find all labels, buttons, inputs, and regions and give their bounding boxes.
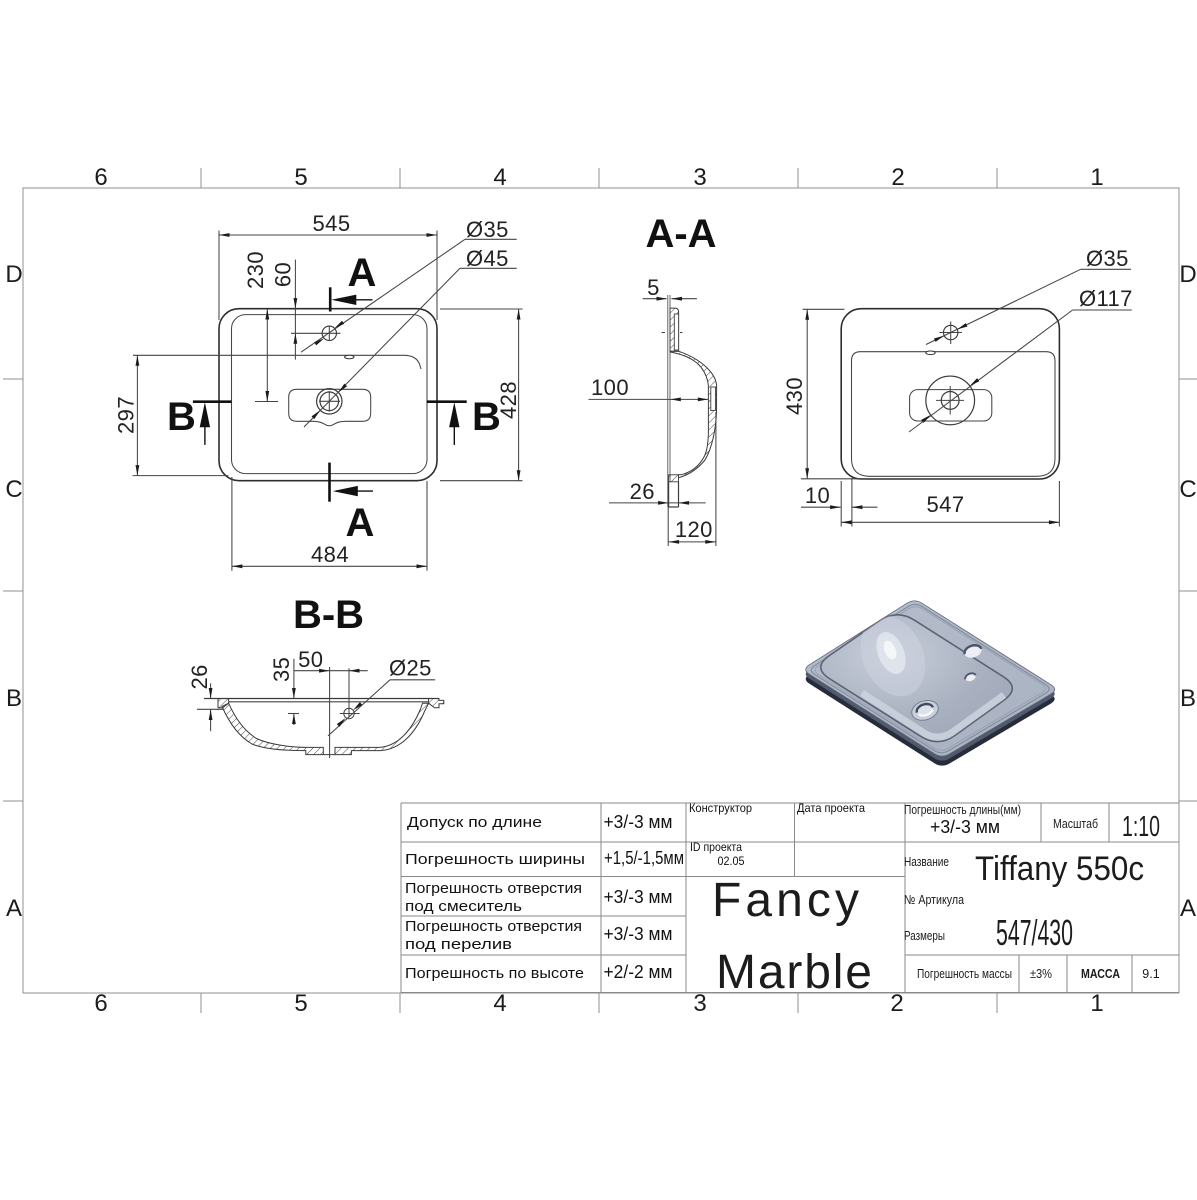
svg-text:50: 50 xyxy=(298,647,323,672)
svg-text:5: 5 xyxy=(294,164,307,191)
svg-text:Ø117: Ø117 xyxy=(1079,286,1133,311)
svg-text:Погрешность отверстия: Погрешность отверстия xyxy=(405,918,582,935)
svg-text:Ø45: Ø45 xyxy=(466,246,509,271)
svg-text:1:10: 1:10 xyxy=(1122,811,1160,843)
svg-text:Погрешность массы: Погрешность массы xyxy=(917,967,1012,981)
svg-text:B-B: B-B xyxy=(293,593,364,637)
svg-text:+3/-3 мм: +3/-3 мм xyxy=(604,924,673,944)
svg-text:Погрешность длины(мм): Погрешность длины(мм) xyxy=(904,802,1021,817)
svg-text:100: 100 xyxy=(591,375,629,400)
svg-text:под смеситель: под смеситель xyxy=(405,898,522,915)
svg-text:4: 4 xyxy=(493,164,506,191)
svg-text:+1,5/-1,5мм: +1,5/-1,5мм xyxy=(604,848,684,868)
svg-text:4: 4 xyxy=(493,990,506,1017)
svg-text:Погрешность отверстия: Погрешность отверстия xyxy=(405,880,582,897)
svg-text:Конструктор: Конструктор xyxy=(689,801,752,815)
svg-text:3: 3 xyxy=(693,164,706,191)
svg-text:Погрешность по высоте: Погрешность по высоте xyxy=(405,965,584,982)
svg-text:297: 297 xyxy=(114,396,139,434)
svg-text:МАССА: МАССА xyxy=(1081,966,1120,981)
svg-text:545: 545 xyxy=(313,211,351,236)
svg-text:Marble: Marble xyxy=(716,946,872,999)
svg-text:430: 430 xyxy=(782,377,807,415)
svg-text:Название: Название xyxy=(904,854,949,869)
svg-text:A: A xyxy=(348,251,377,295)
svg-text:A: A xyxy=(1180,895,1196,922)
svg-text:Погрешность ширины: Погрешность ширины xyxy=(405,851,585,868)
svg-text:+2/-2 мм: +2/-2 мм xyxy=(604,962,673,982)
svg-text:5: 5 xyxy=(294,990,307,1017)
svg-text:A: A xyxy=(346,501,375,545)
svg-text:Ø25: Ø25 xyxy=(389,656,432,681)
svg-text:C: C xyxy=(5,476,22,503)
svg-text:ID проекта: ID проекта xyxy=(690,840,742,854)
svg-text:Fancy: Fancy xyxy=(712,874,859,927)
svg-text:A-A: A-A xyxy=(645,212,716,256)
svg-text:Дата проекта: Дата проекта xyxy=(797,801,865,815)
svg-text:26: 26 xyxy=(187,664,212,689)
svg-text:428: 428 xyxy=(496,381,521,419)
svg-text:B: B xyxy=(6,685,22,712)
svg-text:547: 547 xyxy=(927,492,965,517)
svg-text:10: 10 xyxy=(805,483,830,508)
svg-text:+3/-3 мм: +3/-3 мм xyxy=(604,812,673,832)
svg-text:Масштаб: Масштаб xyxy=(1053,816,1098,831)
svg-text:02.05: 02.05 xyxy=(718,854,745,868)
svg-text:C: C xyxy=(1179,476,1196,503)
svg-text:№ Артикула: № Артикула xyxy=(904,892,965,907)
svg-text:Допуск по длине: Допуск по длине xyxy=(407,814,542,831)
svg-text:9.1: 9.1 xyxy=(1142,967,1159,981)
svg-text:A: A xyxy=(6,895,22,922)
svg-text:120: 120 xyxy=(675,517,713,542)
svg-text:1: 1 xyxy=(1090,164,1103,191)
svg-text:D: D xyxy=(5,261,22,288)
svg-text:B: B xyxy=(167,395,196,439)
svg-text:Tiffany 550c: Tiffany 550c xyxy=(975,850,1144,888)
svg-text:D: D xyxy=(1179,261,1196,288)
svg-text:Ø35: Ø35 xyxy=(466,217,509,242)
svg-text:B: B xyxy=(1180,685,1196,712)
svg-text:35: 35 xyxy=(269,657,294,682)
svg-text:+3/-3 мм: +3/-3 мм xyxy=(930,817,1000,837)
svg-text:60: 60 xyxy=(271,262,296,287)
svg-text:под перелив: под перелив xyxy=(405,936,512,953)
svg-text:Размеры: Размеры xyxy=(904,928,945,943)
svg-text:3: 3 xyxy=(693,990,706,1017)
svg-text:6: 6 xyxy=(94,990,107,1017)
svg-text:26: 26 xyxy=(630,479,655,504)
svg-text:2: 2 xyxy=(890,990,903,1017)
svg-text:+3/-3 мм: +3/-3 мм xyxy=(604,887,673,907)
svg-text:±3%: ±3% xyxy=(1030,967,1052,981)
svg-text:5: 5 xyxy=(647,275,660,300)
svg-text:547/430: 547/430 xyxy=(996,912,1073,953)
svg-text:6: 6 xyxy=(94,164,107,191)
svg-text:2: 2 xyxy=(891,164,904,191)
svg-text:Ø35: Ø35 xyxy=(1086,246,1129,271)
svg-text:1: 1 xyxy=(1090,990,1103,1017)
svg-text:484: 484 xyxy=(311,542,349,567)
svg-text:230: 230 xyxy=(243,251,268,289)
